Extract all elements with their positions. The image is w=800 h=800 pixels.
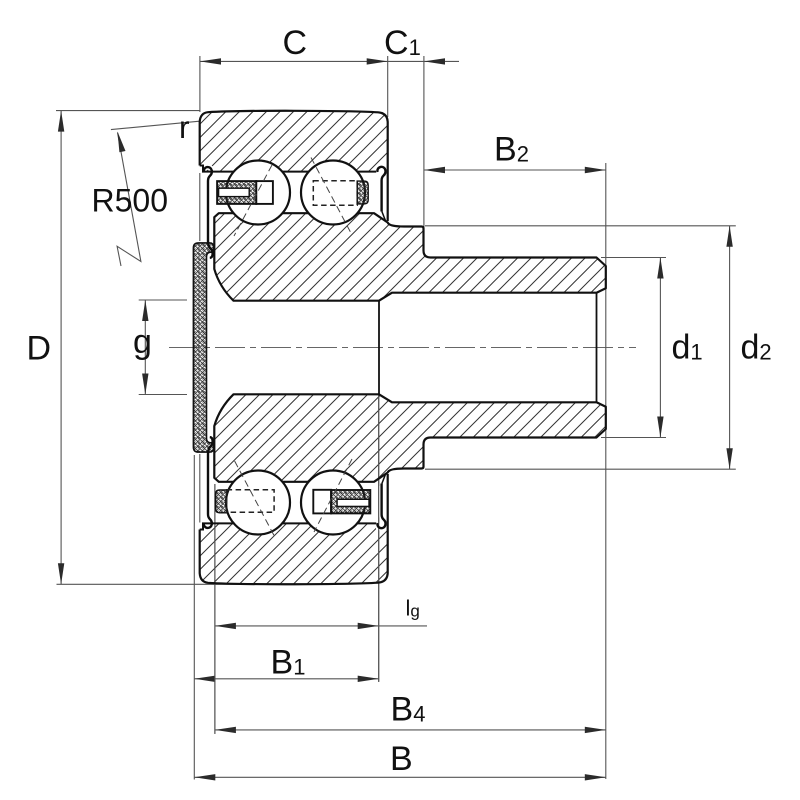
svg-text:B: B xyxy=(390,740,413,778)
svg-text:D: D xyxy=(27,330,52,368)
svg-text:r: r xyxy=(179,109,190,145)
svg-text:C: C xyxy=(283,24,308,62)
svg-text:R500: R500 xyxy=(92,182,169,218)
svg-text:g: g xyxy=(133,323,152,361)
